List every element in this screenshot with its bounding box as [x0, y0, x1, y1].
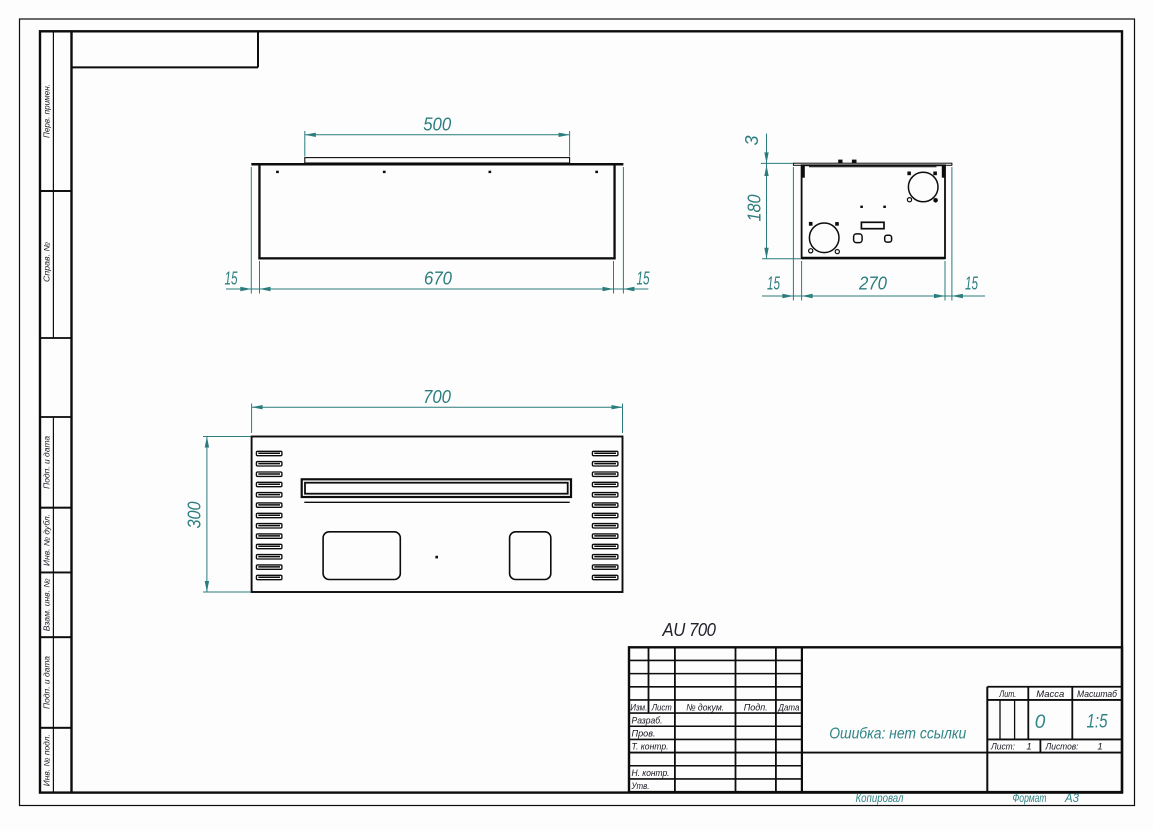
svg-text:№ докум.: № докум.: [686, 703, 724, 714]
svg-text:Масса: Масса: [1036, 689, 1064, 700]
svg-text:Листов:: Листов:: [1045, 742, 1079, 753]
svg-text:15: 15: [767, 274, 781, 294]
svg-text:Формат: Формат: [1013, 793, 1047, 805]
svg-text:Взам. инв. №: Взам. инв. №: [43, 578, 52, 631]
svg-text:0: 0: [1035, 712, 1046, 733]
svg-text:Лист: Лист: [651, 703, 672, 714]
svg-text:1:5: 1:5: [1087, 712, 1108, 733]
svg-text:Подп. и дата: Подп. и дата: [43, 655, 52, 709]
svg-text:700: 700: [423, 387, 451, 407]
svg-text:Ошибка: нет ссылки: Ошибка: нет ссылки: [829, 726, 966, 743]
svg-text:Инв. № подл.: Инв. № подл.: [43, 734, 52, 786]
svg-text:Инв. № дубл.: Инв. № дубл.: [43, 514, 52, 566]
svg-text:Разраб.: Разраб.: [632, 715, 663, 726]
svg-text:Справ. №: Справ. №: [43, 242, 52, 282]
svg-text:Лит.: Лит.: [999, 689, 1017, 700]
svg-text:1: 1: [1026, 742, 1031, 753]
svg-text:1: 1: [1097, 742, 1102, 753]
svg-text:3: 3: [742, 135, 762, 145]
svg-text:Подп. и дата: Подп. и дата: [43, 435, 52, 489]
svg-text:Утв.: Утв.: [631, 781, 650, 792]
svg-text:180: 180: [745, 195, 765, 222]
svg-text:AU 700: AU 700: [662, 620, 716, 640]
svg-text:Изм.: Изм.: [630, 703, 647, 714]
svg-text:670: 670: [424, 269, 452, 289]
svg-text:Т. контр.: Т. контр.: [632, 742, 669, 753]
svg-text:15: 15: [637, 269, 651, 289]
svg-text:Копировал: Копировал: [856, 793, 904, 805]
svg-text:Перв. примен.: Перв. примен.: [43, 84, 52, 138]
svg-text:Подп.: Подп.: [744, 703, 768, 714]
svg-text:Лист:: Лист:: [990, 742, 1015, 753]
svg-text:Пров.: Пров.: [632, 729, 656, 740]
svg-text:270: 270: [858, 274, 887, 294]
svg-text:500: 500: [423, 115, 451, 135]
svg-text:Масштаб: Масштаб: [1077, 689, 1118, 700]
svg-text:А3: А3: [1064, 793, 1080, 805]
svg-text:300: 300: [185, 502, 205, 529]
svg-text:Н. контр.: Н. контр.: [632, 768, 670, 779]
svg-text:15: 15: [225, 269, 239, 289]
svg-text:15: 15: [965, 274, 979, 294]
svg-text:Дата: Дата: [778, 703, 800, 714]
